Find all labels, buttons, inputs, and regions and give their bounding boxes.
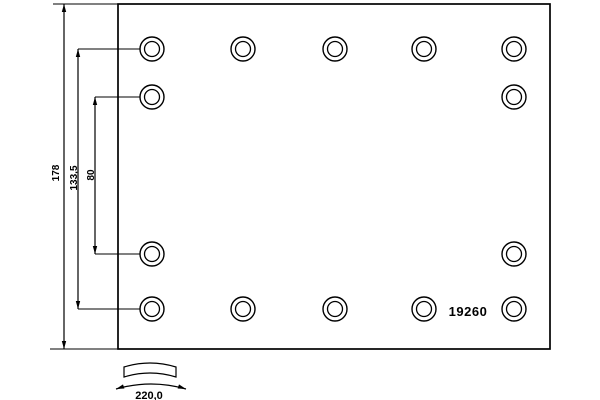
dimension-arrow-down bbox=[93, 246, 97, 254]
rivet-hole-inner bbox=[328, 42, 343, 57]
rivet-hole-outer bbox=[502, 242, 526, 266]
drawing-geometry bbox=[50, 4, 550, 389]
rivet-hole-outer bbox=[502, 37, 526, 61]
dim-label-outer-hole-spacing: 133,5 bbox=[69, 165, 80, 190]
rivet-hole-outer bbox=[140, 85, 164, 109]
technical-drawing-svg: 178 133,5 80 19260 220,0 bbox=[0, 0, 600, 400]
part-number-label: 19260 bbox=[449, 304, 488, 319]
rivet-hole-inner bbox=[328, 302, 343, 317]
rivet-hole-inner bbox=[145, 42, 160, 57]
rivet-hole-inner bbox=[145, 247, 160, 262]
rivet-hole-outer bbox=[323, 37, 347, 61]
rivet-hole-inner bbox=[236, 42, 251, 57]
dim-label-inner-hole-spacing: 80 bbox=[86, 169, 97, 181]
dimension-arrow-down bbox=[62, 341, 66, 349]
rivet-hole-inner bbox=[507, 302, 522, 317]
rivet-hole-inner bbox=[236, 302, 251, 317]
rivet-hole-inner bbox=[417, 42, 432, 57]
dimension-arrow-up bbox=[93, 97, 97, 105]
rivet-hole-outer bbox=[323, 297, 347, 321]
arc-profile-symbol bbox=[124, 363, 176, 377]
rivet-hole-inner bbox=[507, 90, 522, 105]
dimension-arrow-up bbox=[76, 49, 80, 57]
arc-arrow-head-left bbox=[116, 384, 124, 389]
rivet-hole-outer bbox=[412, 37, 436, 61]
rivet-hole-outer bbox=[502, 85, 526, 109]
rivet-hole-inner bbox=[507, 247, 522, 262]
rivet-hole-outer bbox=[502, 297, 526, 321]
rivet-hole-inner bbox=[417, 302, 432, 317]
arc-width-label: 220,0 bbox=[135, 390, 163, 400]
dimension-arrow-down bbox=[76, 301, 80, 309]
arc-width-arrow bbox=[116, 384, 186, 389]
arc-arrow-head-right bbox=[178, 384, 186, 389]
rivet-hole-outer bbox=[231, 37, 255, 61]
drawing-canvas: 178 133,5 80 19260 220,0 bbox=[0, 0, 600, 400]
rivet-hole-outer bbox=[231, 297, 255, 321]
rivet-hole-outer bbox=[412, 297, 436, 321]
rivet-hole-inner bbox=[145, 302, 160, 317]
rivet-hole-inner bbox=[145, 90, 160, 105]
rivet-hole-inner bbox=[507, 42, 522, 57]
rivet-hole-outer bbox=[140, 37, 164, 61]
rivet-hole-outer bbox=[140, 242, 164, 266]
dimension-arrow-up bbox=[62, 4, 66, 12]
dim-label-total-height: 178 bbox=[51, 164, 62, 181]
rivet-hole-outer bbox=[140, 297, 164, 321]
